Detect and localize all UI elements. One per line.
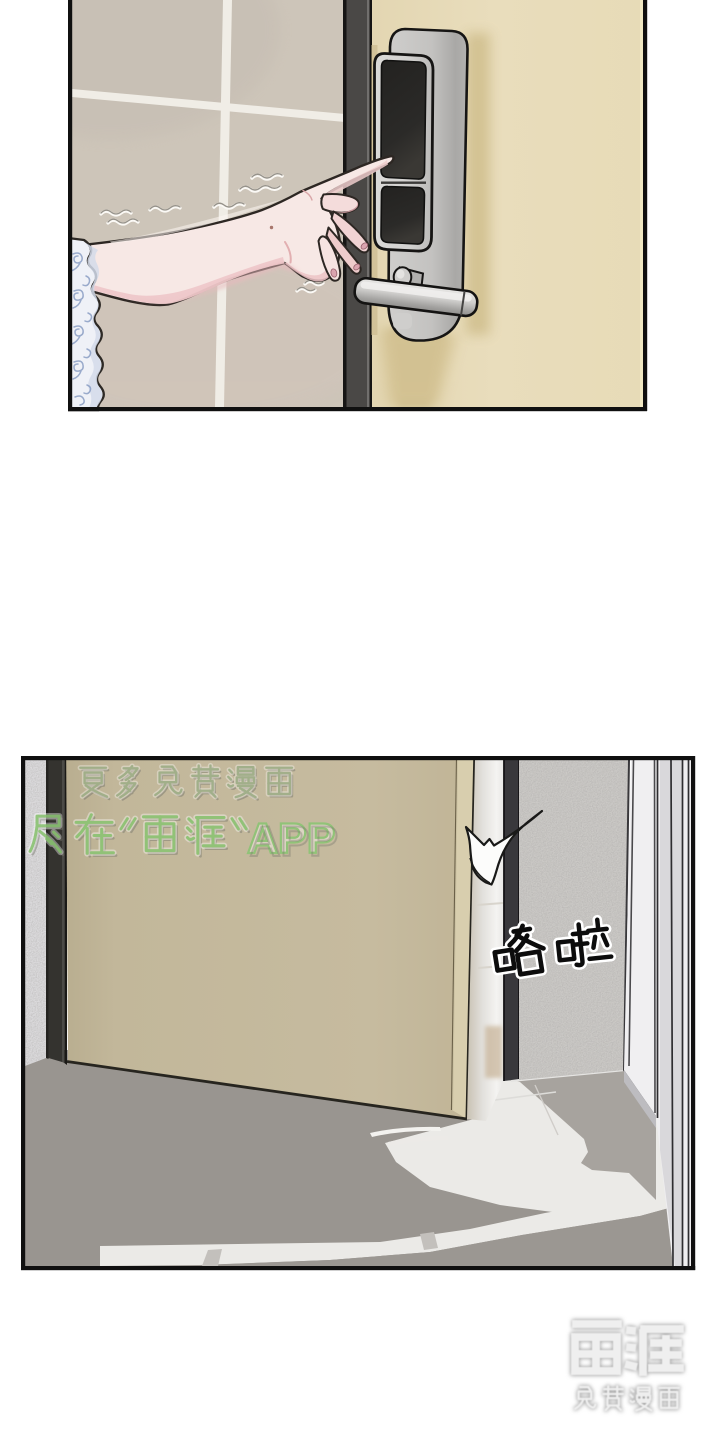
- svg-text:APP: APP: [250, 818, 338, 866]
